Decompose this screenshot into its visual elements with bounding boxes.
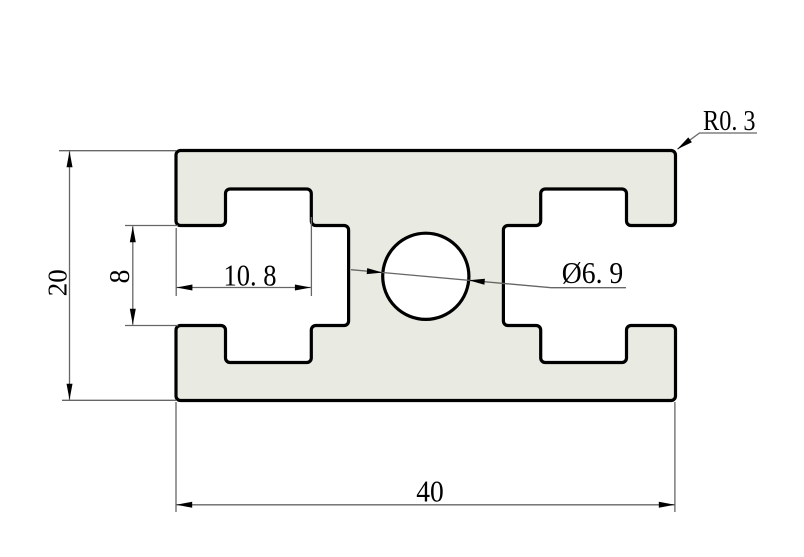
svg-text:R0. 3: R0. 3 [703, 105, 756, 137]
svg-text:10. 8: 10. 8 [224, 257, 277, 292]
svg-text:8: 8 [105, 270, 136, 284]
svg-text:20: 20 [42, 269, 72, 296]
svg-text:Ø6. 9: Ø6. 9 [562, 255, 624, 290]
svg-text:40: 40 [416, 474, 444, 509]
